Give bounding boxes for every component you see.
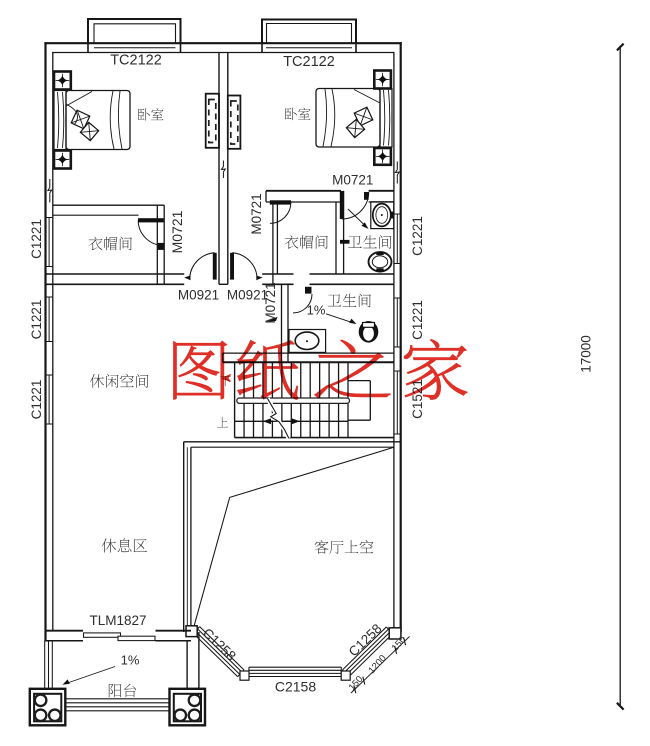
svg-text:TLM1827: TLM1827 <box>89 613 146 628</box>
svg-text:M0721: M0721 <box>332 173 373 188</box>
svg-text:M0721: M0721 <box>249 193 264 234</box>
svg-text:C1221: C1221 <box>410 300 425 340</box>
svg-text:17000: 17000 <box>579 335 594 373</box>
svg-text:M0721: M0721 <box>263 282 278 323</box>
svg-text:C1521: C1521 <box>410 379 425 419</box>
svg-text:C1221: C1221 <box>410 216 425 256</box>
svg-text:1%: 1% <box>121 653 140 668</box>
svg-text:C1221: C1221 <box>29 380 44 420</box>
svg-text:C2158: C2158 <box>275 678 316 694</box>
svg-text:TC2122: TC2122 <box>283 54 335 70</box>
svg-text:C1221: C1221 <box>29 219 44 259</box>
svg-text:C1221: C1221 <box>29 300 44 340</box>
svg-text:M0721: M0721 <box>169 210 185 253</box>
svg-text:M0921: M0921 <box>227 288 268 303</box>
svg-text:TC2122: TC2122 <box>110 53 162 69</box>
svg-text:1%: 1% <box>307 303 326 318</box>
svg-text:M0921: M0921 <box>178 288 219 303</box>
